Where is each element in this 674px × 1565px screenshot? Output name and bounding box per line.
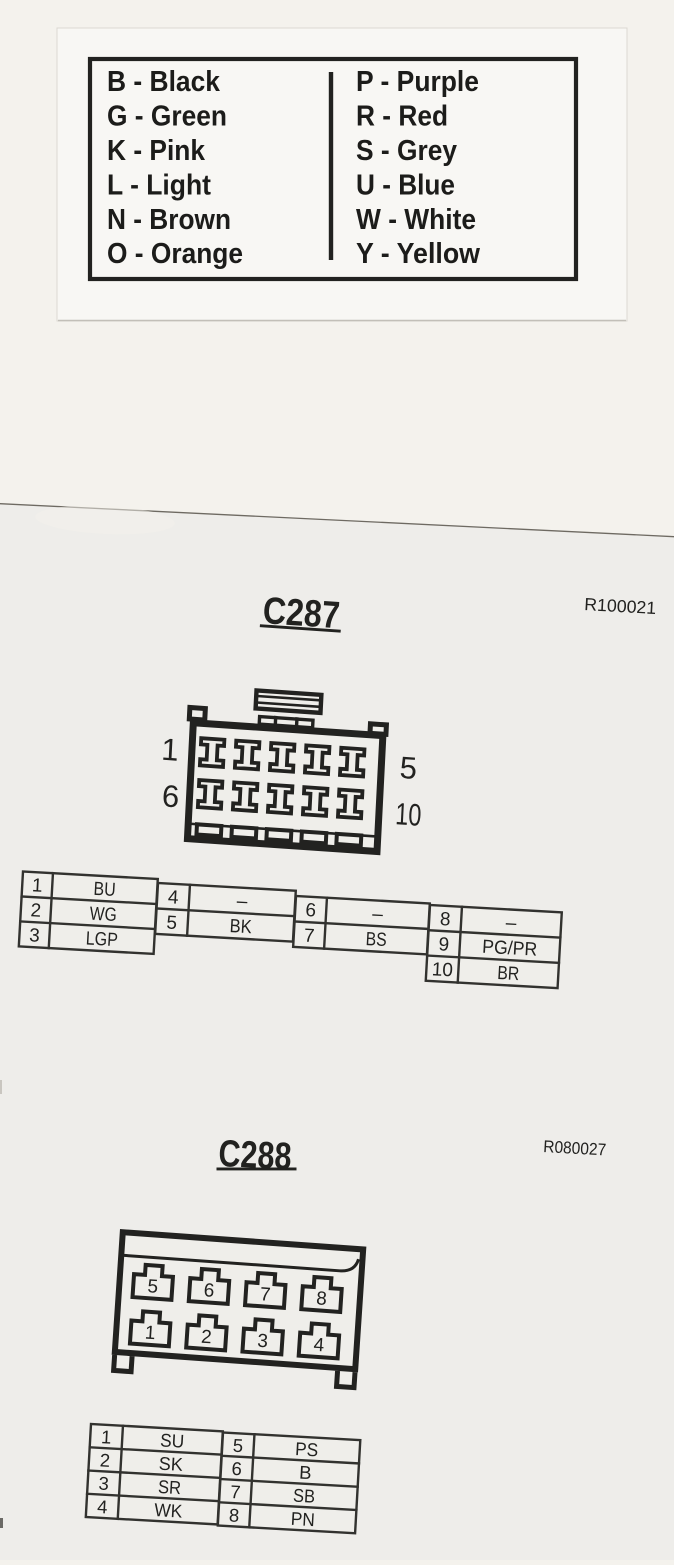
svg-text:SR: SR [158, 1476, 182, 1498]
svg-text:BK: BK [229, 916, 252, 938]
svg-text:5: 5 [232, 1435, 243, 1457]
svg-text:R100021: R100021 [584, 594, 657, 618]
svg-text:9: 9 [438, 934, 450, 956]
svg-text:2: 2 [200, 1327, 212, 1349]
svg-text:P - Purple: P - Purple [356, 66, 479, 98]
svg-text:5: 5 [166, 913, 178, 935]
svg-text:4: 4 [97, 1496, 108, 1518]
svg-text:2: 2 [99, 1449, 110, 1471]
svg-text:B: B [299, 1462, 312, 1484]
svg-text:8: 8 [439, 909, 451, 931]
svg-text:N - Brown: N - Brown [107, 204, 231, 236]
svg-text:3: 3 [29, 925, 41, 947]
svg-text:U - Blue: U - Blue [356, 169, 455, 201]
svg-text:L - Light: L - Light [107, 169, 211, 201]
svg-text:BS: BS [365, 929, 387, 951]
svg-text:C288: C288 [218, 1133, 293, 1178]
svg-text:K - Pink: K - Pink [107, 135, 206, 167]
svg-text:2: 2 [30, 900, 42, 922]
svg-text:8: 8 [316, 1288, 328, 1310]
svg-text:4: 4 [313, 1335, 325, 1357]
svg-text:1: 1 [161, 732, 180, 768]
svg-text:G - Green: G - Green [107, 100, 227, 132]
svg-text:R080027: R080027 [543, 1137, 607, 1159]
svg-text:5: 5 [399, 750, 418, 786]
svg-text:6: 6 [161, 778, 180, 814]
svg-text:S - Grey: S - Grey [356, 135, 457, 167]
svg-text:10: 10 [395, 796, 423, 833]
svg-text:–: – [372, 904, 384, 926]
svg-text:6: 6 [231, 1458, 242, 1480]
svg-text:4: 4 [167, 887, 179, 909]
svg-text:Y - Yellow: Y - Yellow [356, 238, 480, 270]
svg-text:5: 5 [147, 1276, 159, 1298]
svg-text:WG: WG [89, 904, 117, 926]
svg-text:–: – [236, 891, 248, 913]
svg-text:8: 8 [228, 1504, 239, 1526]
svg-text:BU: BU [93, 879, 116, 901]
svg-text:PS: PS [295, 1438, 319, 1460]
svg-text:7: 7 [230, 1481, 241, 1503]
svg-text:3: 3 [257, 1331, 269, 1353]
svg-text:BR: BR [497, 963, 520, 985]
svg-text:1: 1 [31, 875, 43, 897]
svg-text:LGP: LGP [85, 928, 118, 951]
svg-text:7: 7 [303, 926, 315, 948]
svg-text:SK: SK [158, 1453, 184, 1475]
svg-text:PN: PN [290, 1508, 315, 1530]
svg-text:WK: WK [154, 1499, 184, 1522]
svg-text:–: – [505, 913, 517, 935]
svg-text:O - Orange: O - Orange [107, 238, 243, 270]
svg-text:1: 1 [144, 1323, 156, 1345]
svg-text:10: 10 [431, 959, 453, 981]
svg-text:6: 6 [305, 900, 317, 922]
svg-text:W - White: W - White [356, 204, 476, 236]
svg-text:6: 6 [203, 1280, 215, 1302]
svg-text:3: 3 [98, 1473, 109, 1495]
svg-text:B - Black: B - Black [107, 66, 221, 98]
svg-text:PG/PR: PG/PR [482, 937, 538, 961]
svg-text:SB: SB [293, 1485, 316, 1507]
svg-text:1: 1 [101, 1426, 112, 1448]
svg-text:7: 7 [259, 1284, 271, 1306]
svg-text:R - Red: R - Red [356, 100, 448, 132]
svg-text:SU: SU [160, 1429, 185, 1451]
